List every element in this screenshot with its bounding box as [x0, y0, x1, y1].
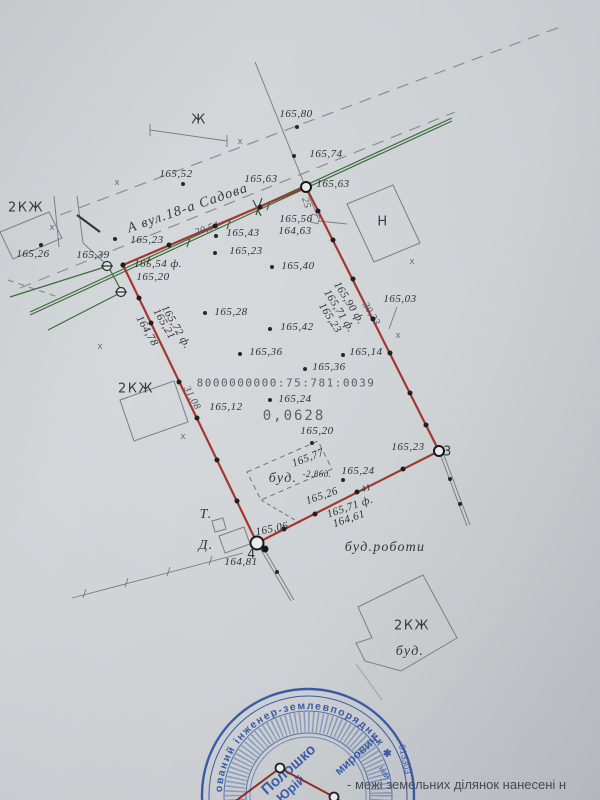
- ground-mark: х: [114, 178, 119, 188]
- boundary-point: [424, 423, 429, 428]
- elevation-label: 165,63: [244, 173, 277, 185]
- plan-labels: Ж165,80165,74165,52165,63165,63А вул.18-…: [0, 0, 600, 800]
- ground-mark: х: [49, 223, 54, 233]
- ground-mark: х: [180, 432, 185, 442]
- elevation-label: 165,63: [316, 178, 349, 190]
- building-note: буд.: [269, 471, 297, 487]
- elevation-point: [270, 265, 274, 269]
- building-label: 2КЖ: [8, 201, 44, 216]
- elevation-label: 165,28: [214, 306, 247, 318]
- ground-mark: х: [237, 137, 242, 147]
- work-note: буд.роботи: [345, 540, 425, 556]
- building-note: буд.: [396, 644, 424, 660]
- boundary-point: [351, 277, 356, 282]
- distance-label: 25: [299, 196, 313, 210]
- corner-number: 3: [443, 445, 453, 460]
- elevation-label: 164,63: [278, 225, 311, 237]
- boundary-point: [258, 205, 263, 210]
- boundary-point: [282, 527, 287, 532]
- cadastral-number: 8000000000:75:781:0039: [197, 377, 376, 390]
- boundary-point: [401, 467, 406, 472]
- elevation-label: 165,23: [229, 245, 262, 257]
- boundary-point: [149, 321, 154, 326]
- building-label: 2КЖ: [118, 382, 154, 397]
- survey-plan-photo: ований інженер-землевпорядник ✱ 013303 П…: [0, 0, 600, 800]
- boundary-point: [177, 380, 182, 385]
- elevation-point: [341, 478, 345, 482]
- boundary-point: [235, 499, 240, 504]
- elevation-label: 165,36: [249, 346, 282, 358]
- legend-note: - межі земельних ділянок нанесені н: [347, 777, 600, 792]
- boundary-point: [215, 458, 220, 463]
- fence-symbol: Ж: [191, 113, 207, 128]
- elevation-label: 165,26: [16, 248, 49, 260]
- ground-mark: х: [97, 342, 102, 352]
- elevation-label: 165,26: [304, 485, 339, 507]
- elevation-point: [341, 353, 345, 357]
- elevation-label: 165,42: [280, 321, 313, 333]
- elevation-label: 165,24: [278, 393, 311, 405]
- elevation-label: 165,43: [226, 227, 259, 239]
- elevation-point: [203, 311, 207, 315]
- structure-label: Д.: [199, 538, 214, 554]
- boundary-point: [388, 351, 393, 356]
- elevation-label: 165,52: [159, 168, 192, 180]
- elevation-label: 165,74: [309, 148, 342, 160]
- elevation-point: [181, 182, 185, 186]
- elevation-point: [448, 477, 452, 481]
- elevation-point: [39, 243, 43, 247]
- elevation-label: 165,54 ф.: [134, 258, 182, 270]
- elevation-point: [295, 125, 299, 129]
- ground-mark: х: [409, 257, 414, 267]
- area-value: 0,0628: [263, 408, 326, 424]
- elevation-point: [268, 327, 272, 331]
- structure-label: Т.: [200, 507, 213, 523]
- elevation-point: [268, 398, 272, 402]
- elevation-label: 165,77: [290, 446, 325, 469]
- elevation-label: 165,14: [349, 346, 382, 358]
- elevation-label: 165,20: [136, 271, 169, 283]
- elevation-label: 165,03: [383, 293, 416, 305]
- boundary-point: [331, 238, 336, 243]
- boundary-point: [167, 243, 172, 248]
- elevation-label: 165,80: [279, 108, 312, 120]
- elevation-point: [238, 352, 242, 356]
- boundary-point: [195, 416, 200, 421]
- elevation-label: 165,40: [281, 260, 314, 272]
- elevation-label: 165,12: [209, 401, 242, 413]
- elevation-label: 165,24: [341, 465, 374, 477]
- elevation-point: [113, 237, 117, 241]
- elevation-label: 165,23: [130, 234, 163, 246]
- elevation-point: [310, 441, 314, 445]
- elevation-point: [214, 234, 218, 238]
- elevation-point: [275, 570, 279, 574]
- elevation-point: [213, 251, 217, 255]
- building-size: -2,86д.: [302, 469, 331, 479]
- elevation-label: 165,56: [279, 213, 312, 225]
- ground-mark: х: [395, 331, 400, 341]
- boundary-point: [371, 317, 376, 322]
- boundary-point: [408, 391, 413, 396]
- boundary-point: [137, 296, 142, 301]
- elevation-label: 164,81: [224, 556, 257, 568]
- building-label: Н: [377, 215, 388, 230]
- elevation-label: 165,20: [300, 425, 333, 437]
- elevation-point: [292, 154, 296, 158]
- boundary-point: [316, 209, 321, 214]
- boundary-point: [313, 512, 318, 517]
- elevation-label: 165,39: [76, 249, 109, 261]
- elevation-label: 165,36: [312, 361, 345, 373]
- elevation-point: [458, 502, 462, 506]
- elevation-label: 165,23: [391, 441, 424, 453]
- building-label: 2КЖ: [394, 619, 430, 634]
- elevation-point: [303, 367, 307, 371]
- boundary-point: [355, 490, 360, 495]
- boundary-point: [213, 224, 218, 229]
